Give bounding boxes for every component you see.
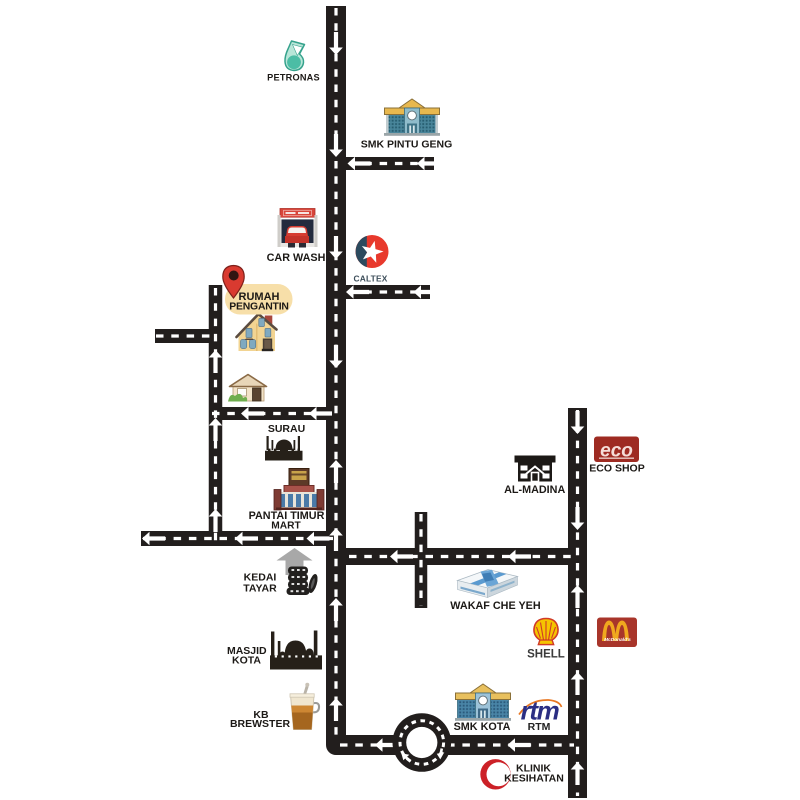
svg-text:CALTEX: CALTEX (353, 274, 387, 284)
svg-text:KESIHATAN: KESIHATAN (504, 773, 564, 785)
svg-text:WAKAF CHE YEH: WAKAF CHE YEH (450, 600, 541, 612)
svg-text:PETRONAS: PETRONAS (267, 73, 320, 83)
svg-text:CAR WASH: CAR WASH (267, 252, 326, 264)
svg-text:ECO SHOP: ECO SHOP (589, 463, 644, 475)
svg-text:MART: MART (271, 521, 301, 532)
svg-text:TAYAR: TAYAR (243, 583, 277, 595)
svg-text:SMK PINTU GENG: SMK PINTU GENG (361, 139, 453, 151)
svg-text:BREWSTER: BREWSTER (230, 718, 291, 730)
svg-text:SURAU: SURAU (268, 423, 305, 435)
svg-text:SHELL: SHELL (527, 649, 565, 661)
svg-text:KOTA: KOTA (232, 655, 261, 667)
svg-text:rtm: rtm (521, 696, 560, 726)
svg-text:SMK KOTA: SMK KOTA (454, 721, 511, 733)
svg-text:McDonald's: McDonald's (604, 637, 631, 643)
svg-text:AL-MADINA: AL-MADINA (504, 484, 565, 496)
svg-text:PENGANTIN: PENGANTIN (229, 302, 288, 313)
